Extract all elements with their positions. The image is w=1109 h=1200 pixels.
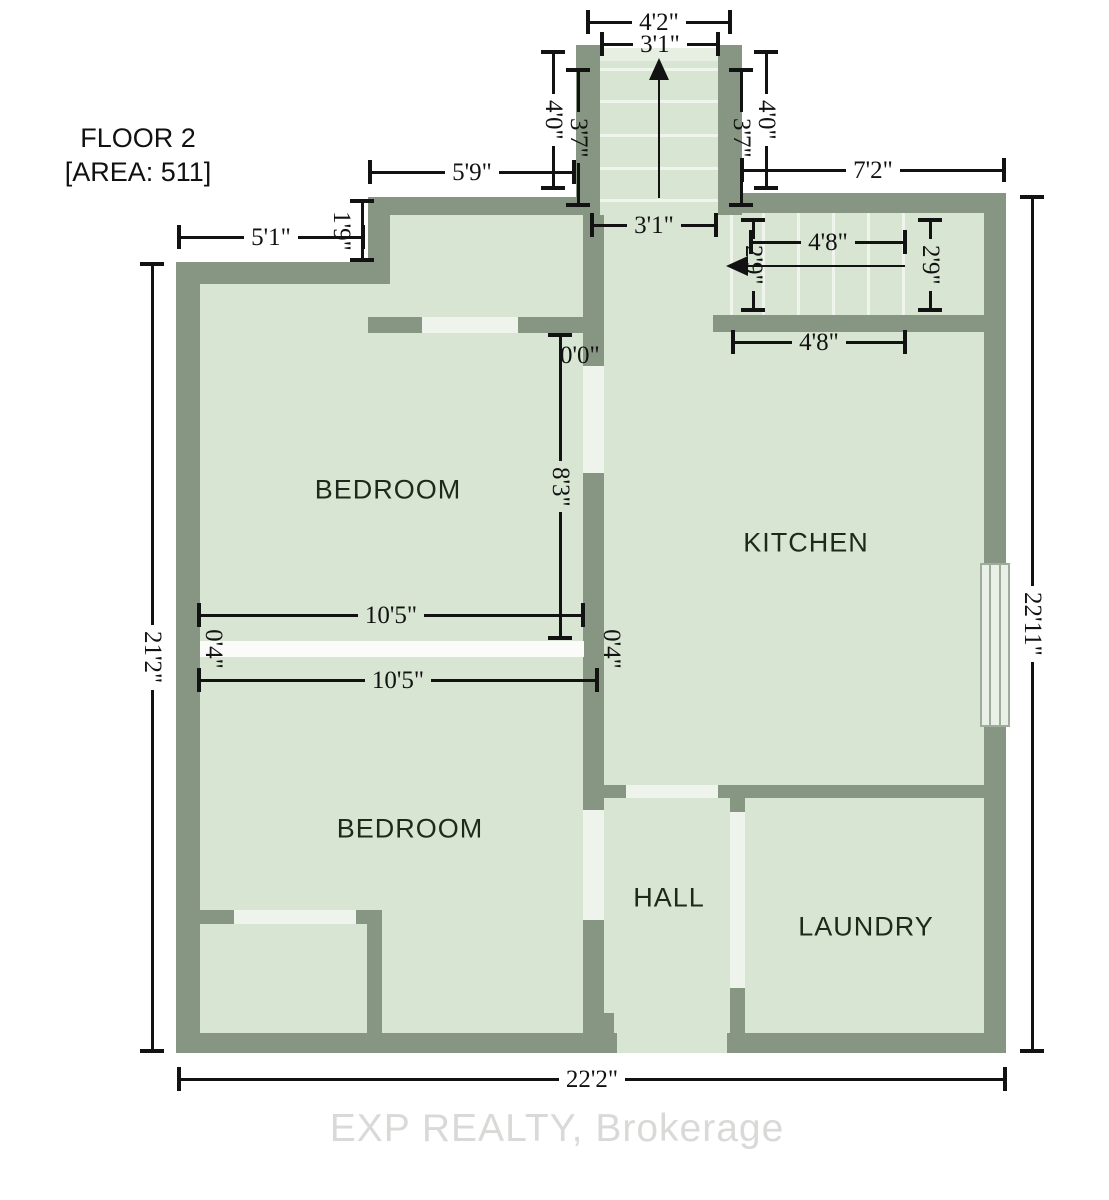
- brokerage-watermark: EXP REALTY, Brokerage: [330, 1107, 785, 1151]
- dimension-stair-left-outer: 4'0": [540, 50, 566, 190]
- plan-title: FLOOR 2 [AREA: 511]: [40, 122, 236, 190]
- dimension-right-total-height: 22'11": [1019, 195, 1045, 1053]
- room-divider-band: [200, 641, 584, 657]
- dimension-divider-left: 0'4": [199, 629, 227, 669]
- wall-closet-stub-left: [368, 317, 422, 333]
- wall-central-lower: [583, 920, 604, 1033]
- stairs-up-arrowhead-icon: [649, 58, 669, 80]
- dimension-kitchen-stair-width-bottom: 4'8": [731, 329, 907, 355]
- wall-top-right: [718, 193, 1006, 213]
- plan-title-floor: FLOOR 2: [40, 122, 236, 156]
- dimension-divider-right: 0'4": [597, 629, 625, 669]
- dimension-zero-offset: 0'0": [560, 342, 600, 370]
- wall-closet2-stub-left: [200, 910, 234, 924]
- dimension-kitchen-stair-width-top: 4'8": [749, 229, 907, 255]
- door-opening-hall-bedroom: [583, 810, 604, 920]
- wall-hall-top-stub: [604, 785, 626, 798]
- dimension-bedroom-upper-width: 10'5": [197, 602, 585, 628]
- stairs-up-arrow-icon: [658, 80, 660, 198]
- dimension-stair-right-outer: 4'0": [753, 50, 779, 190]
- door-opening-closet-upper: [422, 317, 518, 333]
- stair-tread: [600, 199, 718, 202]
- wall-bottom: [176, 1033, 1006, 1053]
- dimension-kitchen-stair-right: 2'9": [917, 218, 943, 312]
- dimension-bedroom-upper-depth: 8'3": [547, 333, 573, 640]
- dimension-stair-left-inner: 3'7": [565, 68, 591, 207]
- room-label-hall: HALL: [633, 883, 705, 914]
- window-symbol: [980, 563, 1010, 727]
- dimension-stair-right-inner: 3'7": [728, 68, 754, 207]
- wall-central-foot: [604, 1013, 614, 1033]
- door-opening-laundry: [730, 812, 745, 988]
- door-opening-closet-lower: [234, 910, 356, 924]
- room-label-laundry: LAUNDRY: [798, 912, 934, 943]
- room-label-bedroom-upper: BEDROOM: [315, 475, 462, 506]
- door-opening-bedroom-upper: [583, 366, 604, 473]
- dimension-stair-inner-width-bottom: 3'1": [590, 212, 718, 238]
- wall-laundry-left-top: [730, 798, 745, 812]
- window-pane-line: [999, 565, 1001, 725]
- room-label-bedroom-lower: BEDROOM: [337, 814, 484, 845]
- wall-laundry-left-bottom: [730, 988, 745, 1033]
- door-opening-hall-bottom: [617, 1033, 727, 1053]
- dimension-bottom-total-width: 22'2": [177, 1066, 1007, 1092]
- wall-kitchen-bottom: [718, 785, 984, 798]
- dimension-stair-inner-width-top: 3'1": [600, 31, 720, 57]
- window-pane-line: [989, 565, 991, 725]
- dimension-bedroom-lower-width: 10'5": [197, 667, 599, 693]
- dimension-left-total-height: 21'2": [139, 262, 165, 1053]
- plan-title-area: [AREA: 511]: [40, 156, 236, 190]
- wall-left: [176, 262, 200, 1053]
- dimension-top-right-wall: 7'2": [740, 157, 1006, 183]
- stairs-down-arrow-icon: [748, 265, 905, 267]
- dimension-wall-step-label: 1'9": [327, 211, 355, 251]
- dimension-kitchen-stair-left: 2'9": [740, 218, 766, 312]
- wall-top-left: [176, 262, 390, 284]
- wall-closet2-vertical: [367, 924, 382, 1033]
- floor-plan: FLOOR 2 [AREA: 511]: [0, 0, 1109, 1200]
- wall-closet2-stub-right: [356, 910, 382, 924]
- door-opening-hall-kitchen: [626, 785, 718, 798]
- room-label-kitchen: KITCHEN: [743, 528, 869, 559]
